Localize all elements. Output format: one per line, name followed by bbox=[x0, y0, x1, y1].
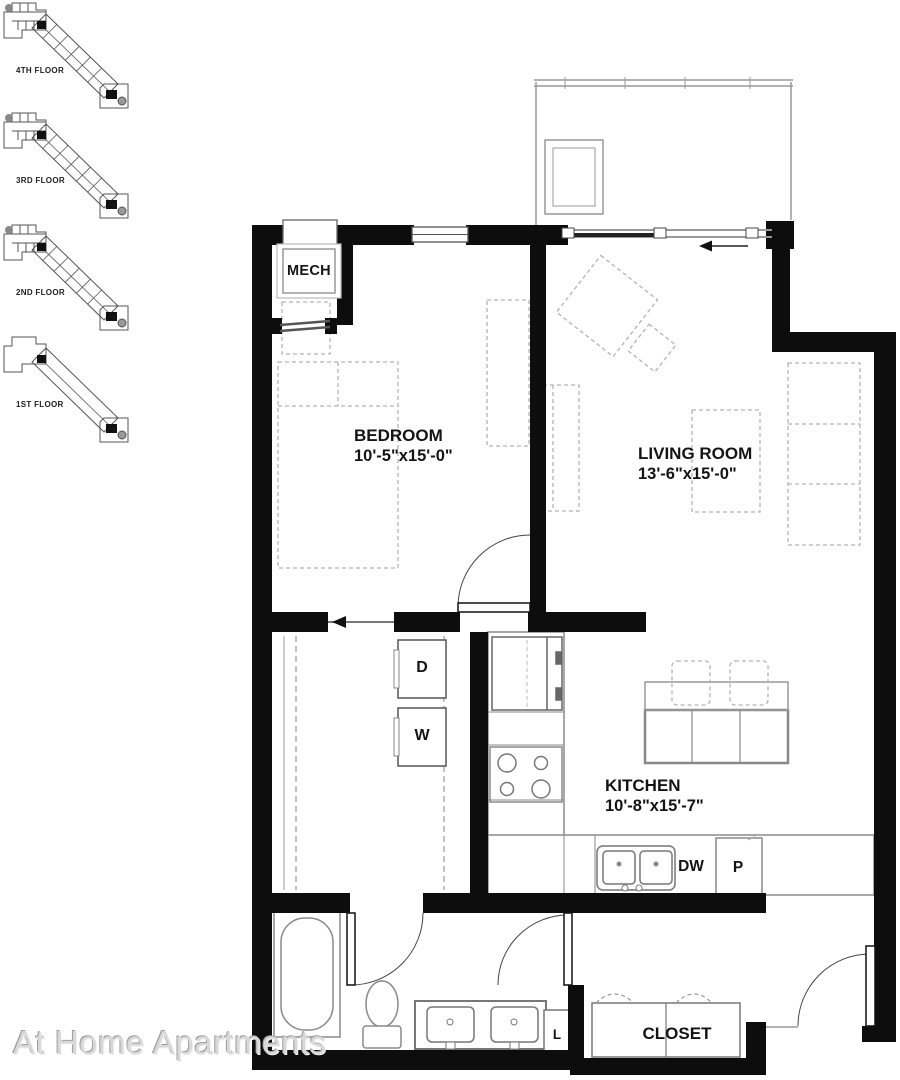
building-outline-icon bbox=[0, 0, 150, 110]
watermark-text: At Home Apartments bbox=[13, 1024, 326, 1062]
toilet bbox=[363, 981, 401, 1048]
dishwasher-label: DW bbox=[668, 857, 714, 876]
floor-locator-label: 3RD FLOOR bbox=[16, 176, 65, 185]
balcony-door bbox=[562, 228, 772, 252]
balcony bbox=[534, 77, 793, 228]
window bbox=[412, 227, 468, 242]
floor-locator-label: 4TH FLOOR bbox=[16, 66, 64, 75]
dryer-label: D bbox=[402, 658, 442, 678]
floor-locator-1st: 1ST FLOOR bbox=[0, 334, 150, 444]
kitchen-label: KITCHEN 10'-8"x15'-7" bbox=[605, 775, 704, 817]
living-room-label: LIVING ROOM 13'-6"x15'-0" bbox=[638, 443, 752, 485]
linen-label: L bbox=[544, 1027, 570, 1044]
floor-locator-3rd: 3RD FLOOR bbox=[0, 110, 150, 220]
balcony-storage-unit bbox=[545, 140, 603, 214]
washer-label: W bbox=[402, 726, 442, 746]
slide-direction-arrow bbox=[699, 241, 748, 252]
vanity bbox=[415, 1001, 546, 1049]
building-outline-icon bbox=[0, 110, 150, 220]
mech-room-label: MECH bbox=[279, 263, 339, 281]
closet-label: CLOSET bbox=[612, 1023, 742, 1044]
bedroom-door bbox=[458, 535, 530, 612]
building-outline-icon bbox=[0, 334, 150, 444]
building-outline-icon bbox=[0, 222, 150, 332]
bedroom-label: BEDROOM 10'-5"x15'-0" bbox=[354, 425, 453, 467]
kitchen-name: KITCHEN bbox=[605, 775, 704, 796]
mech-bifold-door bbox=[280, 321, 330, 331]
floor-locator-4th: 4TH FLOOR bbox=[0, 0, 150, 110]
pantry-label: P bbox=[722, 858, 754, 877]
bar-stools bbox=[672, 661, 768, 705]
kitchen-island bbox=[645, 682, 788, 763]
side-chair bbox=[543, 385, 579, 511]
dresser bbox=[487, 300, 529, 446]
living-room-name: LIVING ROOM bbox=[638, 443, 752, 464]
floor-locator-2nd: 2ND FLOOR bbox=[0, 222, 150, 332]
floor-locator-label: 1ST FLOOR bbox=[16, 400, 64, 409]
bedroom-dimensions: 10'-5"x15'-0" bbox=[354, 446, 453, 466]
sofa bbox=[788, 363, 860, 545]
floor-locator-label: 2ND FLOOR bbox=[16, 288, 65, 297]
entry-door bbox=[766, 946, 875, 1027]
kitchen-sink bbox=[597, 846, 675, 891]
bathroom-door bbox=[347, 913, 423, 985]
pocket-door bbox=[328, 616, 394, 628]
hall-door bbox=[498, 913, 572, 985]
bathtub bbox=[274, 911, 340, 1037]
bedroom-name: BEDROOM bbox=[354, 425, 453, 446]
accent-chair bbox=[556, 255, 675, 371]
kitchen-dimensions: 10'-8"x15'-7" bbox=[605, 796, 704, 816]
refrigerator bbox=[492, 637, 562, 710]
floorplan-page: 4TH FLOOR 3RD FLOOR 2ND FLOOR 1ST FLOOR … bbox=[0, 0, 900, 1080]
living-room-dimensions: 13'-6"x15'-0" bbox=[638, 464, 752, 484]
